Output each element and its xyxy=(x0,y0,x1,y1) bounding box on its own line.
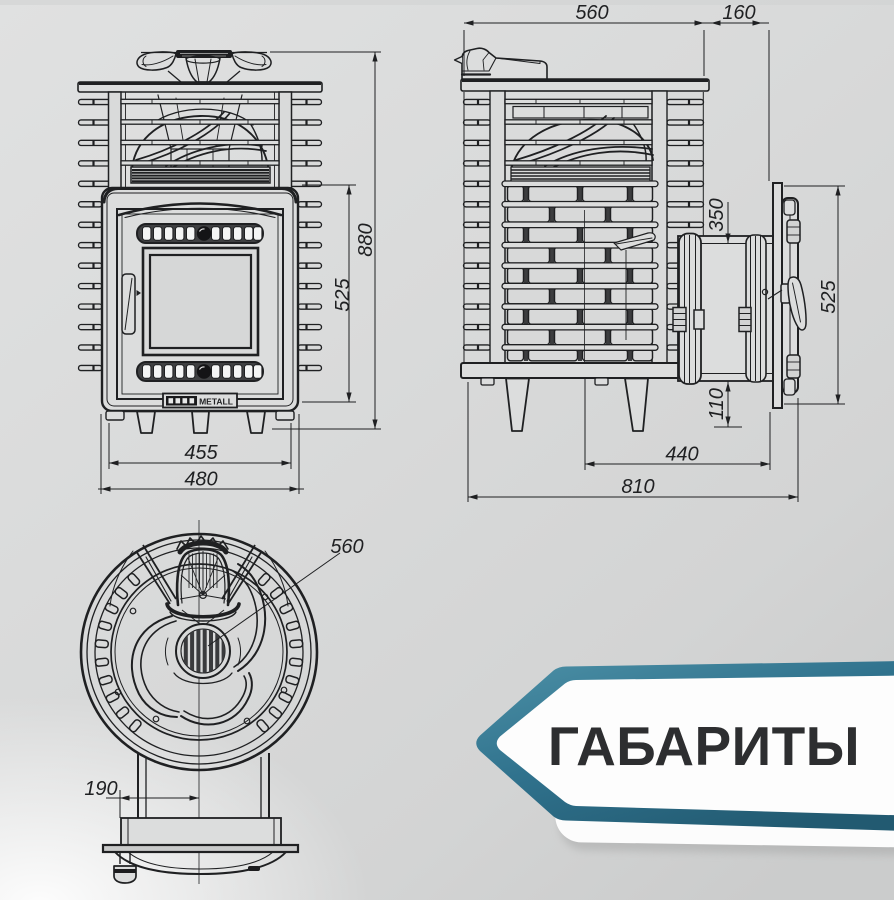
svg-text:160: 160 xyxy=(722,2,755,24)
svg-text:110: 110 xyxy=(706,388,728,420)
svg-text:455: 455 xyxy=(184,442,218,464)
svg-text:190: 190 xyxy=(84,778,117,800)
svg-text:560: 560 xyxy=(575,2,608,24)
svg-text:880: 880 xyxy=(355,223,377,256)
svg-text:560: 560 xyxy=(330,536,363,558)
svg-text:810: 810 xyxy=(621,476,654,498)
svg-text:440: 440 xyxy=(665,444,698,466)
svg-text:525: 525 xyxy=(818,279,840,313)
svg-text:525: 525 xyxy=(332,277,354,311)
svg-text:480: 480 xyxy=(184,469,217,491)
svg-text:METALL: METALL xyxy=(199,397,233,407)
svg-text:350: 350 xyxy=(706,198,728,231)
svg-text:ГАБАРИТЫ: ГАБАРИТЫ xyxy=(548,715,860,777)
